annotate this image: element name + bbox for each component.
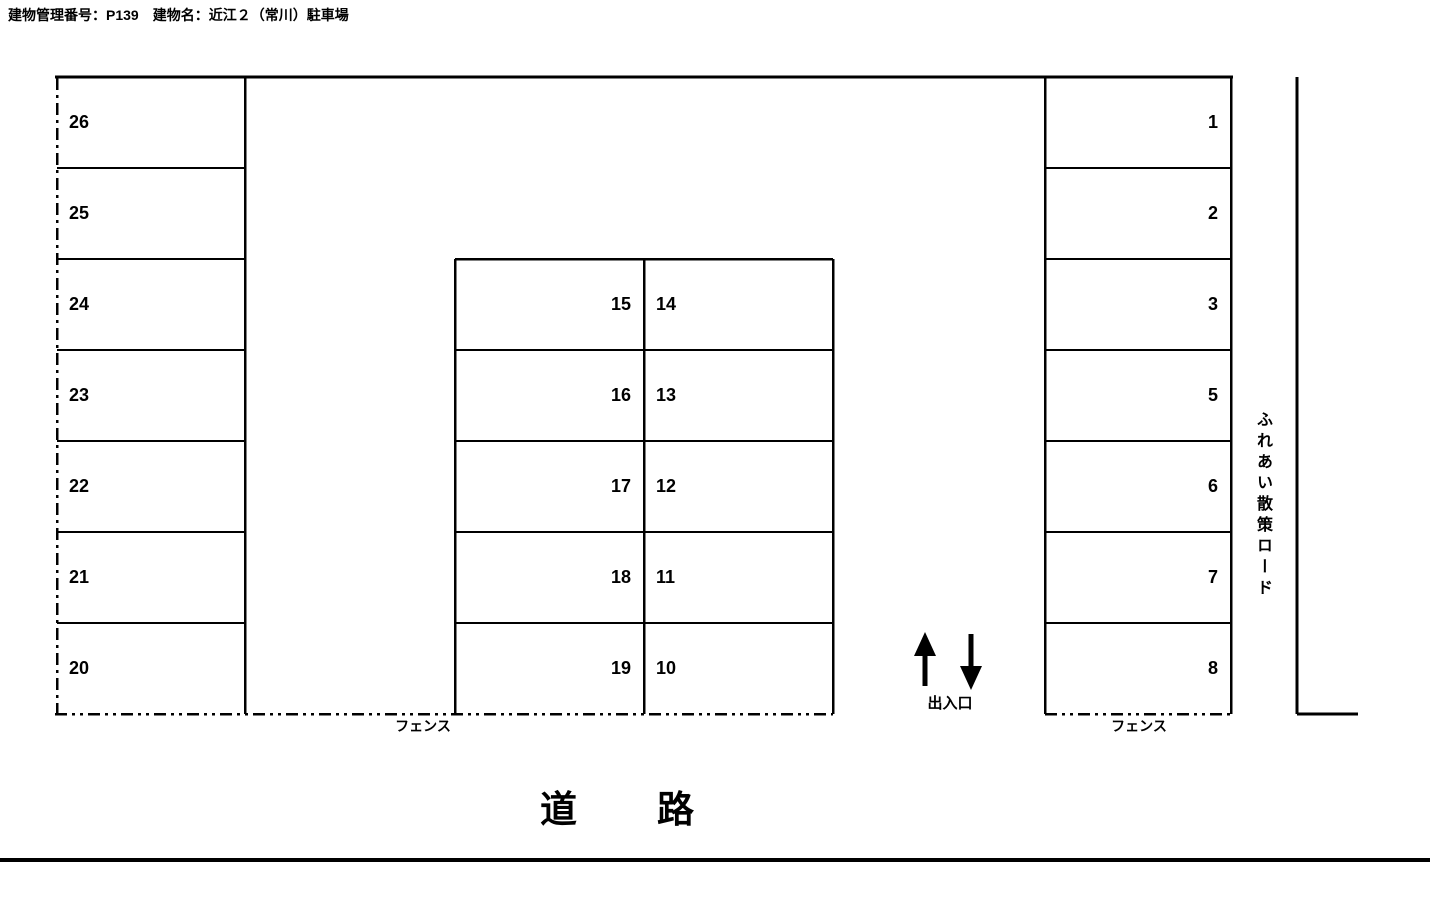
- space-number: 18: [611, 567, 631, 588]
- parking-space-7: 7: [1045, 532, 1231, 623]
- space-number: 13: [656, 385, 676, 406]
- space-number: 7: [1208, 567, 1218, 588]
- parking-space-20: 20: [57, 623, 245, 714]
- road-label: 道 路: [540, 779, 696, 833]
- fence-label-left: フェンス: [373, 716, 473, 736]
- parking-space-14: 14: [644, 259, 833, 350]
- space-number: 2: [1208, 203, 1218, 224]
- space-number: 17: [611, 476, 631, 497]
- space-number: 16: [611, 385, 631, 406]
- space-number: 11: [656, 567, 675, 588]
- down-arrow-icon: [960, 634, 982, 690]
- space-number: 21: [69, 567, 89, 588]
- parking-lot-map: 建物管理番号：P139 建物名：近江２（常川）駐車場 26 25 24 23 2…: [0, 0, 1430, 924]
- entrance-label: 出入口: [900, 692, 1000, 713]
- parking-space-26: 26: [57, 77, 245, 168]
- space-number: 23: [69, 385, 89, 406]
- space-number: 10: [656, 658, 676, 679]
- space-number: 26: [69, 112, 89, 133]
- space-number: 25: [69, 203, 89, 224]
- parking-space-6: 6: [1045, 441, 1231, 532]
- side-road-label: ふれあい散策ロード: [1244, 400, 1274, 610]
- parking-space-19: 19: [455, 623, 644, 714]
- parking-space-2: 2: [1045, 168, 1231, 259]
- space-number: 15: [611, 294, 631, 315]
- parking-space-23: 23: [57, 350, 245, 441]
- parking-space-17: 17: [455, 441, 644, 532]
- fence-label-right: フェンス: [1089, 716, 1189, 736]
- parking-space-1: 1: [1045, 77, 1231, 168]
- parking-space-10: 10: [644, 623, 833, 714]
- parking-space-13: 13: [644, 350, 833, 441]
- space-number: 8: [1208, 658, 1218, 679]
- space-number: 12: [656, 476, 676, 497]
- up-arrow-icon: [914, 632, 936, 686]
- parking-space-21: 21: [57, 532, 245, 623]
- space-number: 24: [69, 294, 89, 315]
- space-number: 19: [611, 658, 631, 679]
- parking-space-15: 15: [455, 259, 644, 350]
- space-number: 14: [656, 294, 676, 315]
- parking-space-8: 8: [1045, 623, 1231, 714]
- parking-space-12: 12: [644, 441, 833, 532]
- parking-space-16: 16: [455, 350, 644, 441]
- page-title: 建物管理番号：P139 建物名：近江２（常川）駐車場: [8, 5, 349, 25]
- parking-space-3: 3: [1045, 259, 1231, 350]
- space-number: 22: [69, 476, 89, 497]
- space-number: 6: [1208, 476, 1218, 497]
- parking-space-11: 11: [644, 532, 833, 623]
- parking-space-25: 25: [57, 168, 245, 259]
- entrance-arrows: [905, 628, 1005, 692]
- space-number: 20: [69, 658, 89, 679]
- space-number: 1: [1208, 112, 1218, 133]
- space-number: 5: [1208, 385, 1218, 406]
- parking-space-24: 24: [57, 259, 245, 350]
- parking-space-5: 5: [1045, 350, 1231, 441]
- parking-space-18: 18: [455, 532, 644, 623]
- parking-space-22: 22: [57, 441, 245, 532]
- space-number: 3: [1208, 294, 1218, 315]
